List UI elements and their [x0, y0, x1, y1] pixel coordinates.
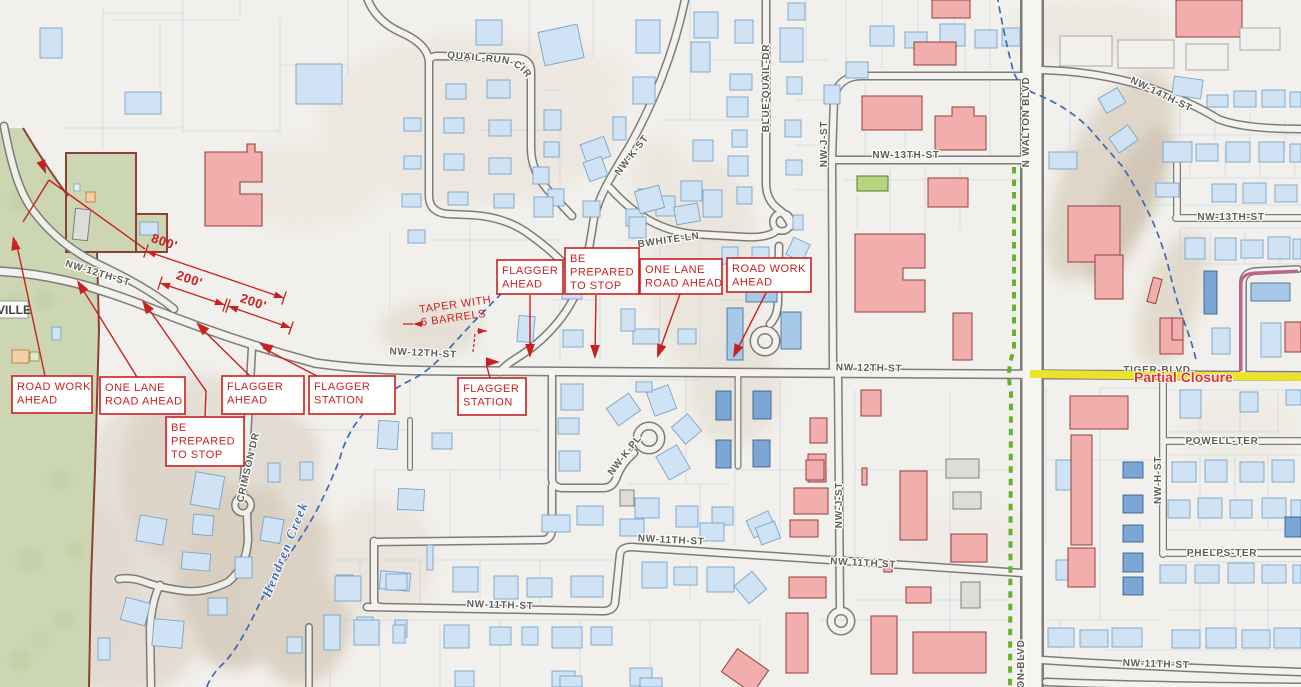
svg-text:AHEAD: AHEAD — [732, 277, 773, 289]
svg-text:ROAD AHEAD: ROAD AHEAD — [105, 396, 183, 408]
svg-text:ONE LANE: ONE LANE — [645, 264, 705, 276]
svg-text:AHEAD: AHEAD — [502, 279, 543, 291]
svg-text:NW-11TH-ST: NW-11TH-ST — [1123, 658, 1190, 671]
svg-text:PREPARED: PREPARED — [171, 436, 235, 448]
svg-text:NW-J-ST: NW-J-ST — [819, 121, 830, 167]
svg-text:FLAGGER: FLAGGER — [227, 381, 283, 393]
svg-text:BLUE-QUAIL-DR: BLUE-QUAIL-DR — [761, 44, 772, 133]
svg-text:STATION: STATION — [314, 395, 364, 407]
svg-text:ON BLVD: ON BLVD — [1016, 639, 1027, 687]
svg-text:FLAGGER: FLAGGER — [463, 383, 519, 395]
svg-text:NW-11TH-ST: NW-11TH-ST — [467, 599, 534, 612]
svg-text:NW-13TH-ST: NW-13TH-ST — [872, 150, 939, 161]
svg-text:ROAD WORK: ROAD WORK — [17, 381, 91, 393]
svg-text:VILLE: VILLE — [0, 303, 31, 317]
svg-text:ROAD AHEAD: ROAD AHEAD — [645, 278, 723, 290]
svg-text:NW 12TH ST: NW 12TH ST — [836, 362, 903, 374]
svg-text:N WALTON BLVD: N WALTON BLVD — [1021, 77, 1032, 168]
svg-text:PHELPS-TER: PHELPS-TER — [1187, 548, 1257, 559]
svg-text:AHEAD: AHEAD — [227, 395, 268, 407]
svg-text:PREPARED: PREPARED — [570, 267, 634, 279]
svg-text:NW-H-ST: NW-H-ST — [1153, 456, 1164, 504]
svg-text:FLAGGER: FLAGGER — [314, 381, 370, 393]
svg-text:Partial Closure: Partial Closure — [1134, 369, 1233, 385]
svg-text:STATION: STATION — [463, 397, 513, 409]
svg-text:ONE LANE: ONE LANE — [105, 382, 165, 394]
svg-text:POWELL-TER: POWELL-TER — [1185, 436, 1258, 447]
svg-text:NW-13TH-ST: NW-13TH-ST — [1197, 212, 1264, 223]
svg-text:TO STOP: TO STOP — [570, 280, 622, 292]
svg-text:NW-J-ST: NW-J-ST — [834, 482, 845, 528]
svg-text:FLAGGER: FLAGGER — [502, 265, 558, 277]
svg-text:BE: BE — [570, 253, 586, 265]
svg-text:TO STOP: TO STOP — [171, 449, 223, 461]
svg-text:BE: BE — [171, 422, 187, 434]
svg-text:AHEAD: AHEAD — [17, 395, 58, 407]
svg-text:ROAD WORK: ROAD WORK — [732, 263, 806, 275]
